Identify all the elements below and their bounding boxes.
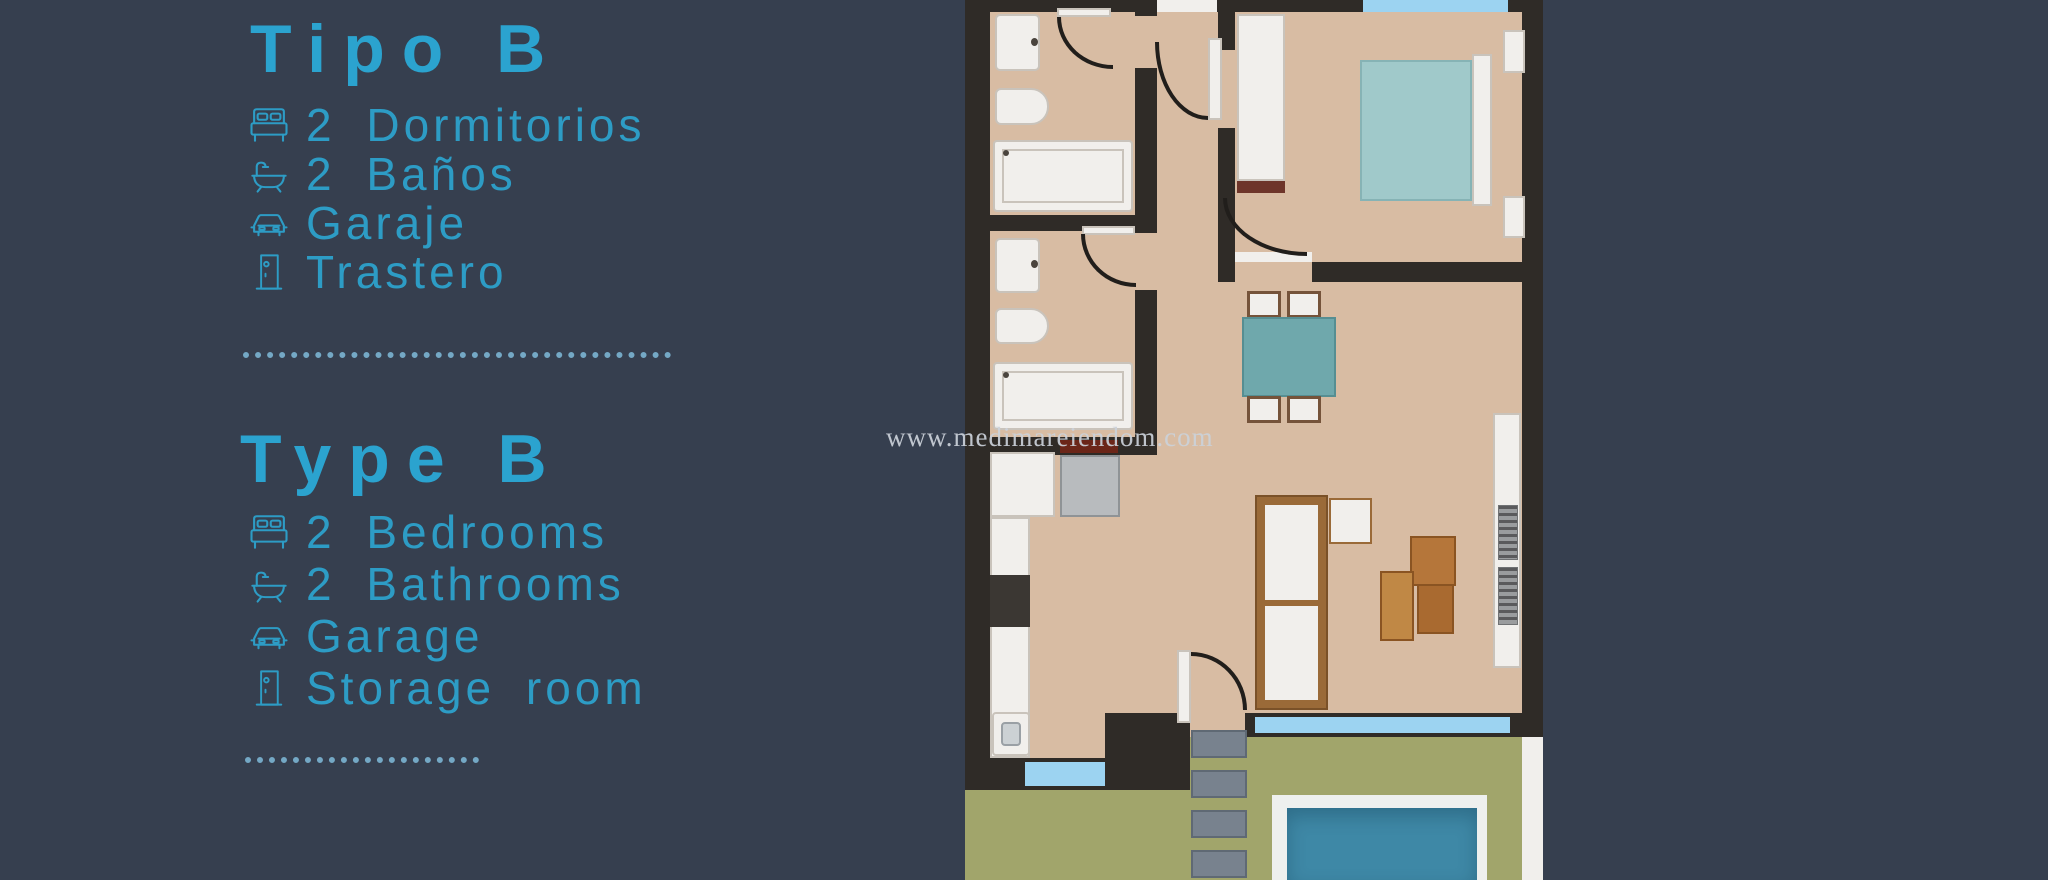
wall-bedroom-bottom (1312, 262, 1522, 282)
refrigerator (1060, 455, 1120, 517)
bedroom-window (1363, 0, 1508, 12)
feature-bathrooms-en: 2 Bathrooms (244, 558, 647, 610)
terrace-step (1191, 850, 1247, 878)
nightstand (1503, 196, 1525, 238)
brochure-page: Tipo B 2 Dormitorios (0, 0, 2048, 880)
feature-garage-es: Garaje (244, 198, 646, 247)
terrace-edge (1522, 737, 1543, 880)
drain-dot (1003, 372, 1009, 378)
bed-icon (244, 102, 294, 148)
terrace-step (1191, 810, 1247, 838)
dotted-divider (243, 352, 671, 358)
sink-basin (1001, 722, 1021, 746)
bathtub (993, 362, 1133, 430)
nightstand (1503, 30, 1525, 73)
headboard (1472, 54, 1492, 206)
faucet-dot (1031, 38, 1038, 46)
toilet (995, 308, 1049, 344)
coffee-table (1417, 584, 1454, 634)
door-icon (244, 665, 294, 711)
feature-bedrooms-es: 2 Dormitorios (244, 100, 646, 149)
door-icon (244, 249, 294, 295)
feature-label: Storage room (306, 661, 647, 715)
cooktop (990, 575, 1030, 627)
kitchen-sink (992, 712, 1030, 756)
wall-bottom-block (1105, 713, 1190, 790)
faucet-dot (1031, 260, 1038, 268)
dotted-divider (245, 757, 479, 763)
page-title-spanish: Tipo B (250, 10, 562, 88)
coffee-table (1380, 571, 1414, 641)
terrace-step (1191, 730, 1247, 758)
sofa (1255, 495, 1328, 710)
tv-screen (1498, 505, 1518, 560)
pool-water (1287, 808, 1477, 880)
kitchen-window (1025, 762, 1105, 786)
wall-bathroom-hall (1135, 0, 1157, 16)
bathroom-door-leaf (1057, 8, 1111, 17)
wall-bathroom-hall (1135, 68, 1157, 233)
page-title-english: Type B (240, 420, 564, 498)
dining-chair (1247, 396, 1281, 423)
wall-bathroom-hall (1135, 290, 1157, 437)
car-icon (244, 613, 294, 659)
dining-chair (1247, 291, 1281, 318)
watermark: www.medimareiendom.com (886, 422, 1214, 453)
terrace-floor (965, 790, 1105, 880)
feature-label: 2 Bathrooms (306, 557, 625, 611)
kitchen-counter (990, 452, 1055, 517)
feature-bedrooms-en: 2 Bedrooms (244, 506, 647, 558)
wall-left (965, 0, 990, 790)
wall-right (1522, 0, 1543, 733)
bathtub (993, 140, 1133, 212)
terrace-sliding-door (1255, 717, 1510, 733)
terrace-step (1191, 770, 1247, 798)
feature-label: 2 Bedrooms (306, 505, 608, 559)
side-table (1329, 498, 1372, 544)
wardrobe-base (1237, 181, 1285, 193)
feature-storage-es: Trastero (244, 247, 646, 296)
entry-threshold (1155, 0, 1217, 12)
dining-table (1242, 317, 1336, 397)
bath-icon (244, 151, 294, 197)
bath-icon (244, 561, 294, 607)
feature-label: 2 Baños (306, 147, 517, 201)
feature-list-english: 2 Bedrooms 2 Bathrooms (244, 506, 647, 714)
entry-door-leaf (1208, 38, 1222, 120)
drain-dot (1003, 150, 1009, 156)
dining-chair (1287, 396, 1321, 423)
terrace-door-leaf (1177, 650, 1191, 723)
toilet (995, 88, 1049, 125)
feature-bathrooms-es: 2 Baños (244, 149, 646, 198)
car-icon (244, 200, 294, 246)
dining-chair (1287, 291, 1321, 318)
double-bed (1360, 60, 1472, 201)
feature-label: Garage (306, 609, 483, 663)
coffee-table (1410, 536, 1456, 586)
feature-label: Garaje (306, 196, 468, 250)
wardrobe (1237, 14, 1285, 181)
tv-shelf-vent (1498, 567, 1518, 625)
feature-garage-en: Garage (244, 610, 647, 662)
feature-label: 2 Dormitorios (306, 98, 646, 152)
feature-list-spanish: 2 Dormitorios 2 Baños (244, 100, 646, 296)
sofa-divider (1263, 600, 1320, 606)
feature-storage-en: Storage room (244, 662, 647, 714)
feature-label: Trastero (306, 245, 508, 299)
bed-icon (244, 509, 294, 555)
